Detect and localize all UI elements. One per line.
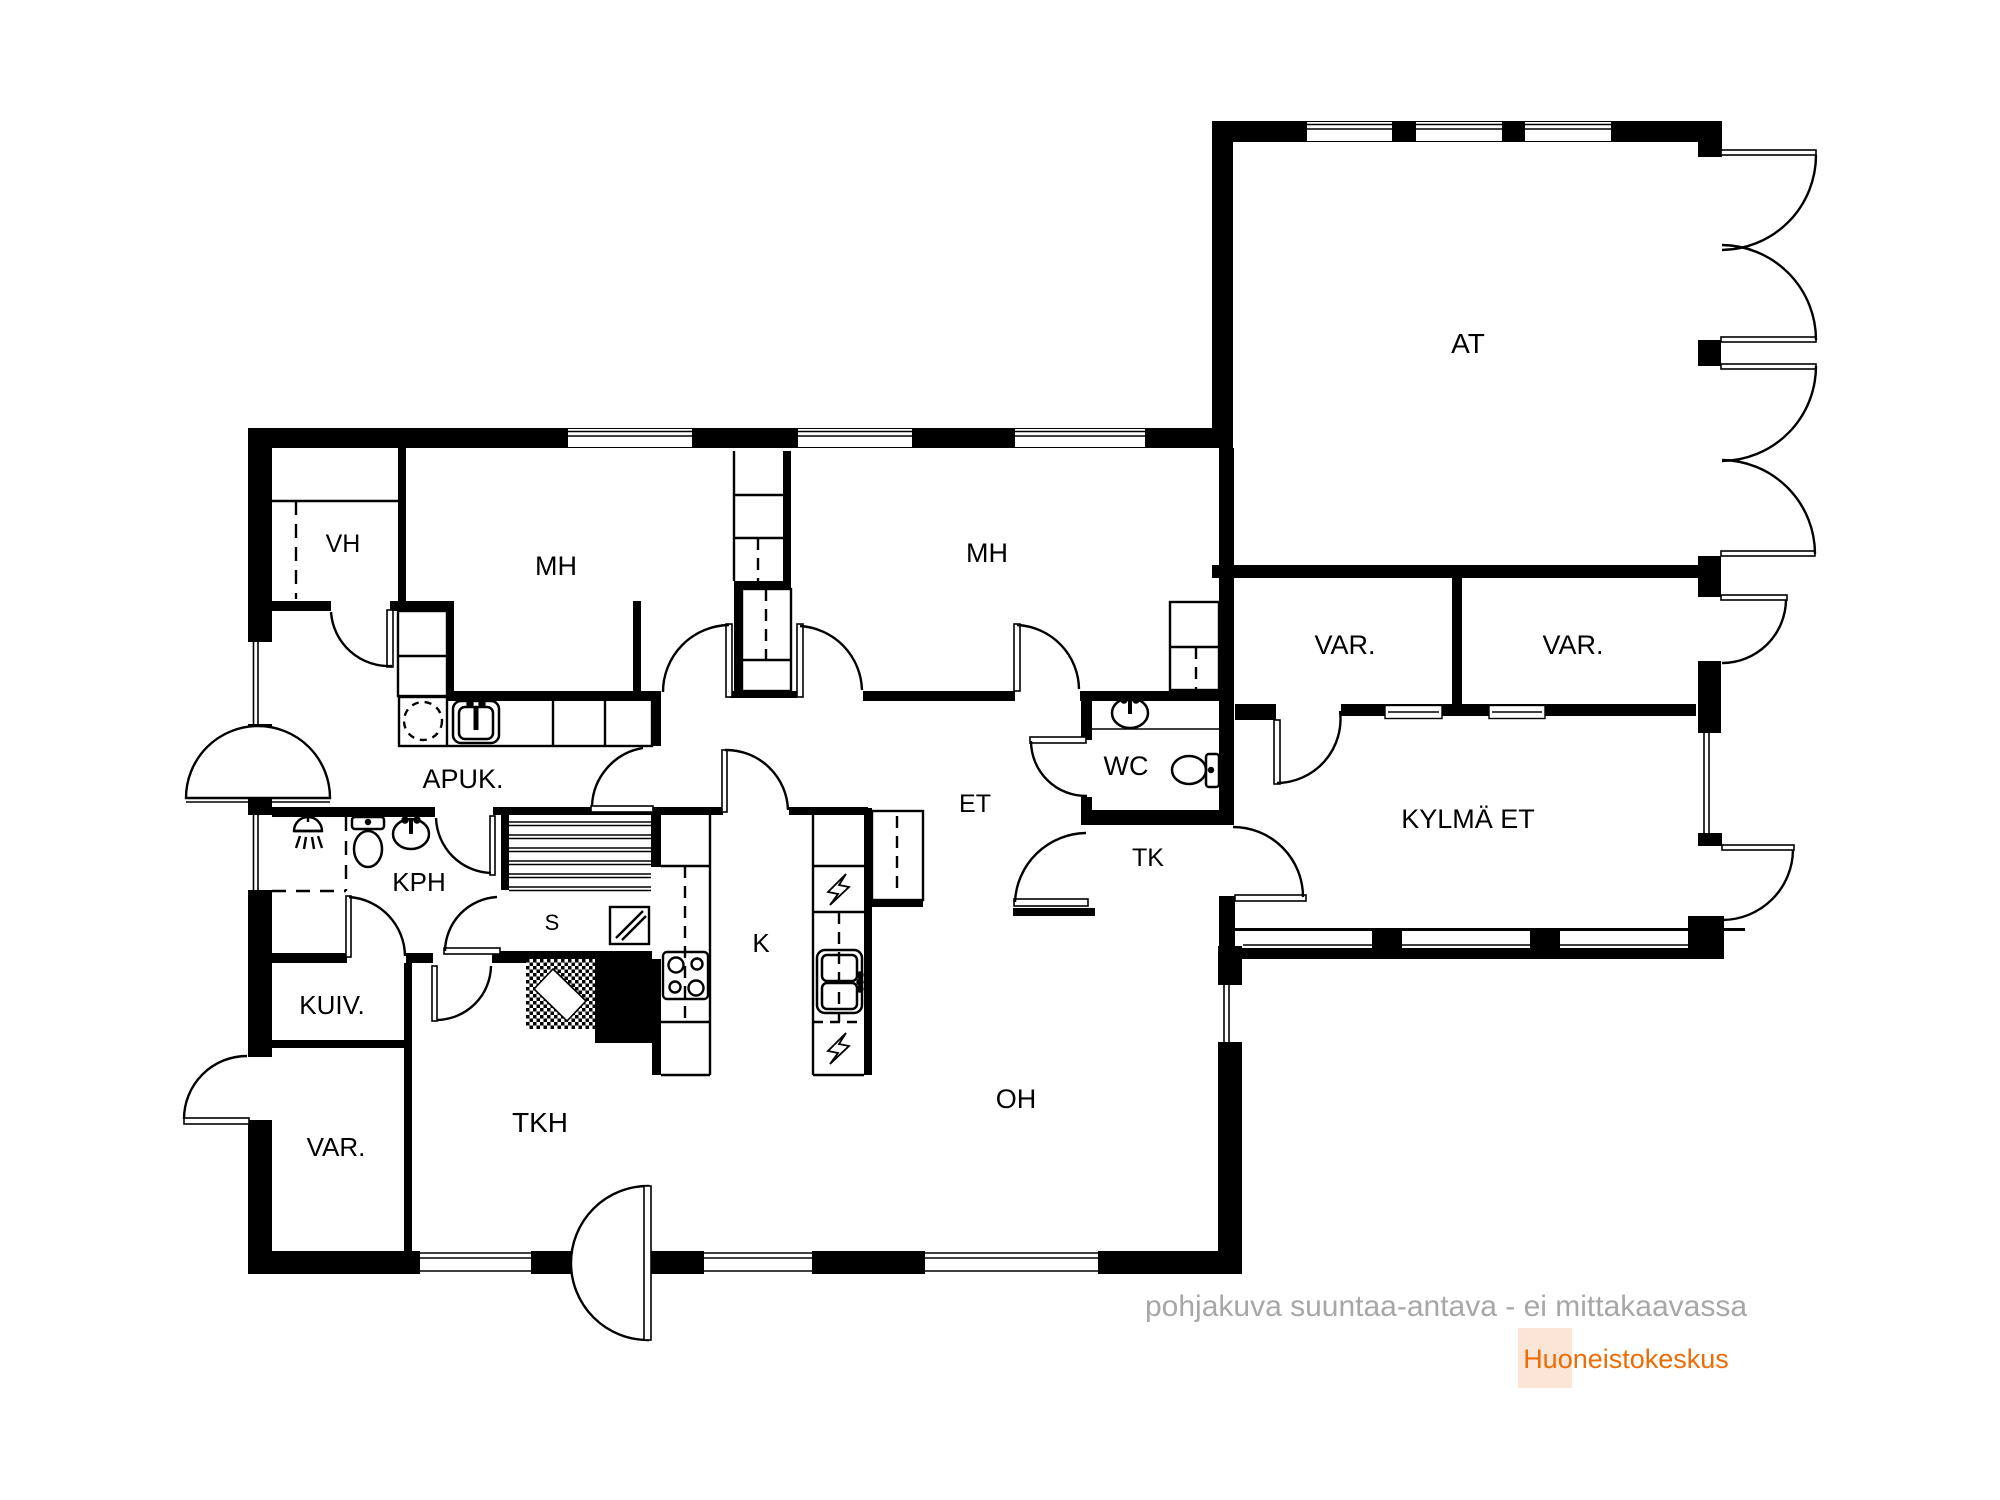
svg-text:VAR.: VAR. [1542,630,1603,660]
svg-text:OH: OH [996,1084,1037,1114]
svg-text:KPH: KPH [392,867,445,897]
svg-text:KYLMÄ ET: KYLMÄ ET [1401,804,1535,834]
svg-text:TKH: TKH [512,1107,568,1138]
svg-text:APUK.: APUK. [422,764,503,794]
svg-text:K: K [752,928,770,958]
svg-text:AT: AT [1451,328,1485,359]
svg-text:ET: ET [959,790,991,818]
svg-text:MH: MH [535,551,577,581]
svg-text:VAR.: VAR. [307,1132,366,1162]
svg-text:VH: VH [326,530,361,558]
svg-text:MH: MH [966,538,1008,568]
svg-text:TK: TK [1132,844,1164,872]
svg-text:VAR.: VAR. [1314,630,1375,660]
svg-text:KUIV.: KUIV. [299,990,365,1020]
svg-text:Huoneistokeskus: Huoneistokeskus [1523,1344,1729,1374]
svg-text:pohjakuva suuntaa-antava - ei: pohjakuva suuntaa-antava - ei mittakaava… [1145,1290,1747,1323]
svg-text:S: S [545,910,560,935]
svg-text:WC: WC [1104,751,1149,781]
